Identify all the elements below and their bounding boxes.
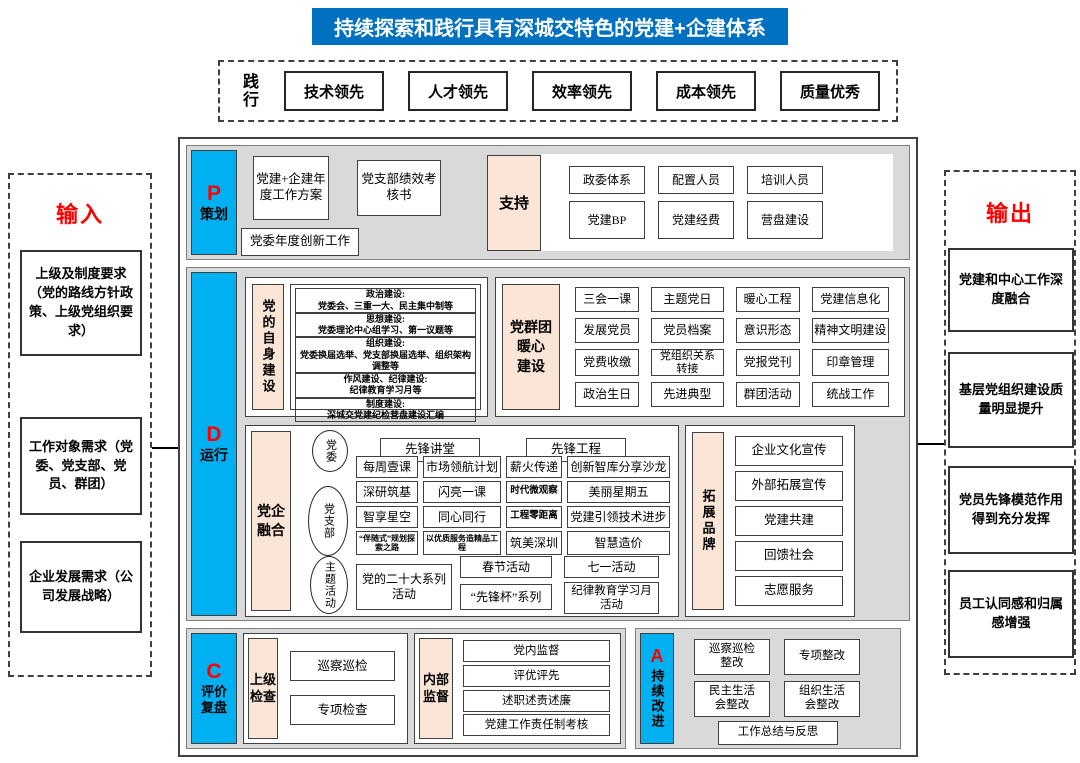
branch-item: 深研筑基 [356, 481, 418, 503]
warm-item: 印章管理 [812, 349, 889, 376]
theme-item: 春节活动 [460, 556, 552, 578]
internal-supervision-label: 内部 监督 [419, 638, 453, 739]
self-building-item: 思想建设: 党委理论中心组学习、第一议题等 [295, 313, 476, 338]
branch-item: 工程零距离 [506, 506, 562, 528]
output-panel: 输出 党建和中心工作深度融合 基层党组织建设质量明显提升 党员先锋模范作用得到充… [944, 170, 1076, 675]
support-item: 政委体系 [569, 166, 645, 194]
c-box: C 评价 复盘 上级 检查 巡察巡检 专项检查 内部 监督 党内监督 评优评先 … [186, 628, 626, 749]
upper-check-item: 巡察巡检 [290, 651, 395, 681]
a-item: 民主生活 会整改 [694, 681, 770, 717]
theme-item: 七一活动 [564, 556, 659, 578]
support-panel: 政委体系 配置人员 培训人员 党建BP 党建经费 营盘建设 [541, 154, 893, 251]
self-building-list: 政治建设: 党委会、三重一大、民主集中制等 思想建设: 党委理论中心组学习、第一… [290, 284, 481, 410]
brand-item: 外部拓展宣传 [735, 471, 843, 501]
phase-name-a: 持续改进 [648, 669, 667, 729]
phase-label-c: C 评价 复盘 [191, 633, 237, 744]
branch-item: 闪亮一课 [423, 481, 501, 503]
branch-item: 美丽星期五 [567, 481, 670, 503]
practice-item-talent: 人才领先 [408, 71, 508, 111]
support-item: 营盘建设 [747, 201, 823, 239]
d-content: 党的自身建设 政治建设: 党委会、三重一大、民主集中制等 思想建设: 党委理论中… [245, 272, 905, 616]
phase-label-a: A 持续改进 [640, 633, 674, 744]
branch-item: 时代微观察 [506, 481, 562, 503]
branch-item: 筑美深圳 [506, 531, 562, 555]
branch-item: 智慧造价 [567, 531, 670, 555]
phase-name-p: 策划 [200, 206, 228, 223]
banner-title: 持续探索和践行具有深城交特色的党建+企建体系 [312, 8, 788, 45]
self-building-item: 作风建设、纪律建设: 纪律教育学习月等 [295, 373, 476, 398]
warm-grid: 三会一课 主题党日 暖心工程 党建信息化 发展党员 党员档案 意识形态 精神文明… [563, 281, 901, 413]
practice-label: 践行 [236, 73, 260, 109]
self-building-item: 政治建设: 党委会、三重一大、民主集中制等 [295, 288, 476, 313]
branch-item: 党建引领技术进步 [567, 506, 670, 528]
branch-item: 同心同行 [423, 506, 501, 528]
brand-item: 回馈社会 [735, 541, 843, 571]
brand-item: 党建共建 [735, 506, 843, 536]
upper-check-item: 专项检查 [290, 695, 395, 725]
input-panel: 输入 上级及制度要求（党的路线方针政策、上级党组织要求） 工作对象需求（党委、党… [8, 173, 152, 677]
input-item: 工作对象需求（党委、党支部、党员、群团） [20, 417, 142, 515]
practice-item-efficiency: 效率领先 [532, 71, 632, 111]
brand-box: 拓展品牌 企业文化宣传 外部拓展宣传 党建共建 回馈社会 志愿服务 [685, 425, 855, 617]
brand-list: 企业文化宣传 外部拓展宣传 党建共建 回馈社会 志愿服务 [727, 429, 851, 613]
a-item: 组织生活 会整改 [784, 681, 860, 717]
connector-left [152, 447, 178, 449]
support-item: 培训人员 [747, 166, 823, 194]
branch-item: “伴随式”规划探索之路 [356, 531, 418, 555]
upper-check-label: 上级 检查 [248, 638, 278, 739]
warm-item: 意识形态 [736, 318, 800, 343]
internal-item: 述职述责述廉 [463, 690, 610, 712]
warm-item: 三会一课 [575, 287, 639, 312]
warm-item: 党员档案 [651, 318, 723, 343]
warm-item: 先进典型 [651, 382, 723, 407]
support-row: 党建BP 党建经费 营盘建设 [569, 201, 893, 239]
branch-item: 创新智库分享沙龙 [567, 456, 670, 478]
branch-item: 市场领航计划 [423, 456, 501, 478]
internal-item: 评优评先 [463, 665, 610, 687]
plan-area: 党建+企建年度工作方案 党支部绩效考核书 党委年度创新工作 [237, 150, 487, 255]
output-item: 员工认同感和归属感增强 [948, 570, 1074, 658]
self-building-label: 党的自身建设 [252, 284, 284, 410]
internal-item: 党内监督 [463, 640, 610, 662]
a-item: 巡察巡检 整改 [694, 639, 770, 675]
phase-label-p: P 策划 [191, 150, 237, 255]
plan-box-assessment: 党支部绩效考核书 [357, 160, 441, 216]
a-box: A 持续改进 巡察巡检 整改 专项整改 民主生活 会整改 组织生活 会整改 工作… [635, 628, 901, 749]
warm-item: 统战工作 [812, 382, 889, 407]
brand-item: 志愿服务 [735, 576, 843, 606]
internal-supervision-box: 内部 监督 党内监督 评优评先 述职述责述廉 党建工作责任制考核 [414, 633, 621, 744]
committee-circle-label: 党委 [325, 439, 336, 463]
fusion-content: 党委 先锋讲堂 先锋工程 党支部 每周壹课 市场领航计划 薪火传递 创新智库分享… [298, 428, 672, 614]
main-frame: P 策划 党建+企建年度工作方案 党支部绩效考核书 党委年度创新工作 支持 政委… [178, 137, 918, 757]
support-item: 配置人员 [658, 166, 734, 194]
practice-item-tech: 技术领先 [284, 71, 384, 111]
phase-name-d: 运行 [200, 447, 228, 464]
theme-circle-label: 主题活动 [324, 561, 335, 609]
a-item: 工作总结与反思 [718, 721, 838, 745]
warm-item: 政治生日 [575, 382, 639, 407]
input-title: 输入 [10, 197, 150, 229]
warm-item: 党建信息化 [812, 287, 889, 312]
warm-item: 党费收缴 [575, 349, 639, 376]
fusion-box: 党企 融合 党委 先锋讲堂 先锋工程 党支部 每周壹课 市场领航计划 [245, 425, 679, 617]
output-item: 党员先锋模范作用得到充分发挥 [948, 466, 1074, 554]
branch-circle: 党支部 [308, 486, 348, 556]
connector-right [918, 443, 944, 445]
phase-letter-d: D [206, 424, 221, 445]
theme-item: “先锋杯”系列 [460, 584, 552, 610]
support-label: 支持 [487, 155, 541, 251]
warm-item: 主题党日 [651, 287, 723, 312]
practice-panel: 践行 技术领先 人才领先 效率领先 成本领先 质量优秀 [218, 60, 898, 122]
branch-circle-label: 党支部 [323, 503, 334, 539]
internal-supervision-items: 党内监督 评优评先 述职述责述廉 党建工作责任制考核 [457, 638, 616, 739]
branch-item: 智享星空 [356, 506, 418, 528]
pdca-diagram: 持续探索和践行具有深城交特色的党建+企建体系 践行 技术领先 人才领先 效率领先… [0, 0, 1080, 763]
upper-check-items: 巡察巡检 专项检查 [282, 638, 403, 739]
self-building-item: 组织建设: 党委换届选举、党支部换届选举、组织架构调整等 [295, 337, 476, 373]
warm-item: 发展党员 [575, 318, 639, 343]
warm-item: 精神文明建设 [812, 318, 889, 343]
output-title: 输出 [946, 196, 1074, 228]
self-building-item: 制度建设: 深城交党建纪检营盘建设汇编 [295, 398, 476, 423]
phase-name-c: 评价 复盘 [201, 684, 227, 715]
practice-item-quality: 质量优秀 [780, 71, 880, 111]
warm-item: 群团活动 [736, 382, 800, 407]
branch-item: 每周壹课 [356, 456, 418, 478]
output-item: 党建和中心工作深度融合 [948, 248, 1074, 332]
theme-item: 纪律教育学习月 活动 [564, 582, 659, 614]
phase-label-d: D 运行 [191, 272, 237, 616]
output-item: 基层党组织建设质量明显提升 [948, 352, 1074, 448]
committee-circle: 党委 [312, 430, 348, 472]
warm-item: 党组织关系 转接 [651, 349, 723, 376]
d-row: D 运行 党的自身建设 政治建设: 党委会、三重一大、民主集中制等 思想建设: … [186, 267, 910, 621]
practice-item-cost: 成本领先 [656, 71, 756, 111]
brand-label: 拓展品牌 [692, 432, 724, 610]
plan-box-innovation: 党委年度创新工作 [241, 228, 359, 256]
a-item: 专项整改 [784, 639, 860, 675]
fusion-label: 党企 融合 [251, 431, 291, 611]
support-item: 党建经费 [658, 201, 734, 239]
input-item: 企业发展需求（公司发展战略） [20, 541, 142, 633]
warm-building-label: 党群团 暖心 建设 [502, 284, 560, 410]
warm-item: 党报党刊 [736, 349, 800, 376]
c-row: C 评价 复盘 上级 检查 巡察巡检 专项检查 内部 监督 党内监督 评优评先 … [186, 628, 910, 749]
branch-grid: 每周壹课 市场领航计划 薪火传递 创新智库分享沙龙 深研筑基 闪亮一课 时代微观… [356, 456, 670, 555]
theme-big-item: 党的二十大系列活动 [356, 564, 452, 610]
p-row: P 策划 党建+企建年度工作方案 党支部绩效考核书 党委年度创新工作 支持 政委… [186, 145, 910, 260]
warm-item: 暖心工程 [736, 287, 800, 312]
phase-letter-p: P [207, 183, 221, 204]
plan-box-annual: 党建+企建年度工作方案 [253, 156, 329, 220]
branch-item: 以优质服务造精品工程 [423, 531, 501, 555]
theme-circle: 主题活动 [310, 556, 348, 614]
phase-letter-a: A [651, 647, 664, 665]
brand-item: 企业文化宣传 [735, 436, 843, 466]
self-building-box: 党的自身建设 政治建设: 党委会、三重一大、民主集中制等 思想建设: 党委理论中… [245, 277, 488, 417]
input-item: 上级及制度要求（党的路线方针政策、上级党组织要求） [20, 250, 142, 356]
phase-letter-c: C [206, 661, 221, 682]
upper-check-box: 上级 检查 巡察巡检 专项检查 [243, 633, 408, 744]
warm-building-box: 党群团 暖心 建设 三会一课 主题党日 暖心工程 党建信息化 发展党员 党员档案… [495, 277, 905, 417]
internal-item: 党建工作责任制考核 [463, 714, 610, 736]
support-row: 政委体系 配置人员 培训人员 [569, 166, 893, 194]
branch-item: 薪火传递 [506, 456, 562, 478]
a-items-area: 巡察巡检 整改 专项整改 民主生活 会整改 组织生活 会整改 工作总结与反思 [674, 633, 896, 744]
support-item: 党建BP [569, 201, 645, 239]
